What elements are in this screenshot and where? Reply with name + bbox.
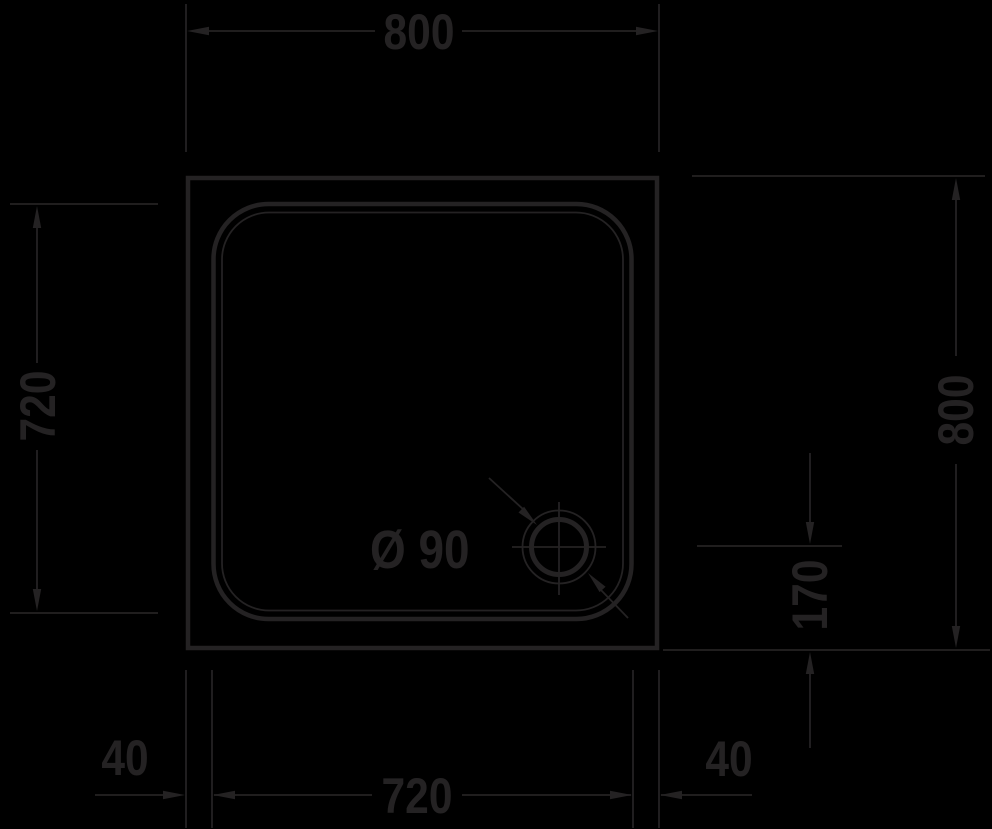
drain-leader-upper — [489, 478, 537, 525]
arrowhead — [952, 626, 960, 648]
dimension-value: 800 — [928, 375, 984, 446]
arrowhead — [33, 589, 41, 611]
arrowhead — [33, 206, 41, 228]
arrowhead — [163, 791, 185, 799]
arrowhead — [187, 27, 209, 35]
arrowhead — [610, 791, 632, 799]
arrowhead — [806, 652, 814, 674]
technical-drawing-canvas: Ø 90 800 720 800 170 — [0, 0, 992, 829]
drain: Ø 90 — [370, 478, 628, 618]
dimension-value-margin-right: 40 — [705, 731, 752, 787]
arrowhead — [952, 178, 960, 200]
leader-line — [489, 478, 524, 510]
drain-diameter-label: Ø 90 — [370, 520, 470, 580]
dimension-value: 800 — [384, 4, 455, 60]
dim-drain-offset: 170 — [697, 453, 842, 748]
arrowhead — [519, 507, 538, 525]
dim-bottom: 40 720 40 — [95, 670, 753, 828]
dim-left-height: 720 — [10, 204, 158, 613]
arrowhead — [588, 573, 606, 592]
dimension-value: 720 — [10, 371, 66, 442]
dim-top-width: 800 — [186, 4, 659, 152]
dimension-value-inner-width: 720 — [382, 768, 453, 824]
arrowhead — [636, 27, 658, 35]
dimension-value: 170 — [782, 560, 838, 631]
dimension-value-margin-left: 40 — [101, 730, 148, 786]
arrowhead — [806, 522, 814, 544]
shower-tray-drawing: Ø 90 800 720 800 170 — [0, 0, 992, 829]
